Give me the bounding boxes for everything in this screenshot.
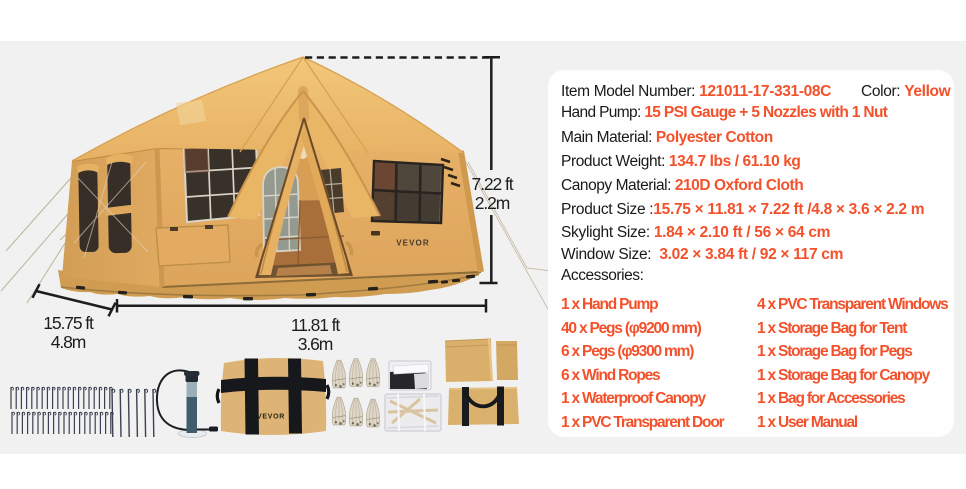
- svg-text:VEVOR: VEVOR: [257, 414, 285, 421]
- svg-text:VEVOR: VEVOR: [396, 239, 430, 248]
